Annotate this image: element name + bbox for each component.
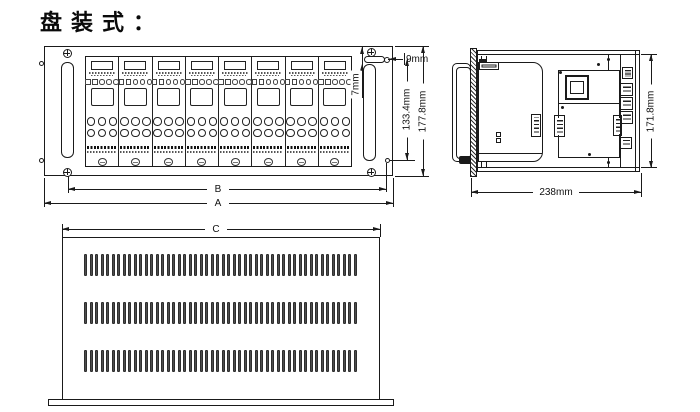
vent-slot [233,302,236,324]
vent-slot [249,254,252,276]
vent-slot [194,350,197,372]
module-header-text [289,72,315,74]
terminal-block [620,83,633,96]
vent-slot [211,254,214,276]
vent-slot [348,350,351,372]
vent-slot [326,302,329,324]
vent-slot [200,254,203,276]
vent-slot [244,254,247,276]
vent-slot [150,254,153,276]
vent-slot [266,254,269,276]
vent-slot [321,350,324,372]
terminal-block [620,111,633,124]
module-led-row [218,79,252,85]
vent-slot [238,302,241,324]
dimension-label: 177.8mm [418,83,429,139]
vent-slot [172,302,175,324]
screw-dot [559,71,562,74]
extension-line [390,160,415,161]
screw-dot [588,153,591,156]
vent-slot [178,350,181,372]
page-title: 盘装式： [40,5,164,37]
vent-slot [277,254,280,276]
module-header-text [224,75,246,77]
vent-slot [128,350,131,372]
module-led-row [318,79,352,85]
front-modules [85,56,352,167]
module-footer-text [220,146,250,149]
module-lcd-display [157,88,180,106]
terminal-block [620,137,632,149]
vent-slot [310,350,313,372]
vent-slot [354,254,357,276]
card-connector [531,114,541,137]
vent-slot [156,254,159,276]
vent-slot [288,302,291,324]
module-footer-text [154,146,184,149]
vent-slot [244,350,247,372]
dimension-arrow [471,190,478,194]
vent-slot [299,302,302,324]
module-led-row [152,79,186,85]
vent-slot [343,350,346,372]
vent-slot [90,302,93,324]
module-button-row [87,117,118,126]
vent-slot [167,254,170,276]
module-lcd-display [257,88,280,106]
keyhole-slot [364,56,385,63]
vent-slot [266,302,269,324]
mounting-hole [39,158,44,163]
vent-slot [315,350,318,372]
assembly-divider-line [558,103,620,104]
vent-slot [178,254,181,276]
module-footer-text [120,146,150,149]
module-header-text [122,72,148,74]
vent-slot [266,350,269,372]
module-button-row [187,117,218,126]
module-lcd-display [91,88,114,106]
module-footer-text [220,151,250,153]
vent-slot [106,302,109,324]
dimension-label: 7mm [351,71,362,99]
extension-line [393,178,394,207]
vent-slot [95,302,98,324]
dimension-arrow [649,54,653,61]
dimension-arrow [634,190,641,194]
module-footer-text [287,146,317,149]
vent-slot [178,302,181,324]
controller-module [286,57,319,166]
display-window-inner [570,81,584,94]
vent-slot [249,350,252,372]
vent-slot [354,302,357,324]
vent-slot [128,302,131,324]
vent-slot [343,254,346,276]
screw-dot [607,161,610,164]
module-led-row [119,79,153,85]
terminal-block [620,97,633,110]
vent-slot [222,302,225,324]
dimension-label: A [207,198,229,209]
handle-inner [456,67,471,159]
module-led-row [185,79,219,85]
vent-slot [139,302,142,324]
module-screw [231,158,240,166]
vent-slot [156,350,159,372]
vent-slot [282,302,285,324]
module-button-row [220,129,251,138]
vent-slot [343,302,346,324]
module-footer-text [287,151,317,153]
rear-panel-line [635,50,636,172]
vent-slot [337,302,340,324]
module-footer-text [320,146,350,149]
module-lcd-display [190,88,213,106]
vent-slot [332,302,335,324]
vent-slot [189,302,192,324]
dimension-arrow [389,57,396,61]
vent-slot [112,350,115,372]
case-inner-line [477,54,640,55]
vent-slot [150,350,153,372]
vent-slot [145,302,148,324]
vent-slot [271,254,274,276]
vent-slot [134,254,137,276]
vent-slot [117,302,120,324]
vent-slot [332,254,335,276]
vent-slot [354,350,357,372]
card-component [496,132,501,137]
vent-slot [106,350,109,372]
screw-dot [561,106,564,109]
vent-slot [288,254,291,276]
dimension-label: B [207,184,229,195]
vent-slot [282,254,285,276]
card-outline [478,62,543,162]
vent-slot [227,302,230,324]
dimension-arrow [360,47,364,54]
vent-slot [293,302,296,324]
module-header-text [156,72,182,74]
vent-slot [249,302,252,324]
vent-slot [112,254,115,276]
vent-slot [244,302,247,324]
vent-slot [348,254,351,276]
controller-module [86,57,119,166]
module-screw [164,158,173,166]
vent-slot [134,350,137,372]
vent-slot [315,254,318,276]
vent-slot [271,350,274,372]
module-button-row [220,117,251,126]
controller-module [219,57,252,166]
module-footer-text [87,146,117,149]
module-screw [330,158,339,166]
module-header-text [191,75,213,77]
card-component [496,138,501,143]
vent-slot [172,254,175,276]
terminal-block [622,67,633,79]
controller-module [119,57,152,166]
module-button-row [286,117,317,126]
dimension-label: 238mm [533,187,579,198]
vent-slot [321,302,324,324]
dimension-arrow [44,201,51,205]
vent-slot [321,254,324,276]
dimension-arrow [649,161,653,168]
vent-slot [304,302,307,324]
vent-slot [310,254,313,276]
module-label-window [191,61,213,70]
vent-row [84,254,357,276]
dimension-arrow [405,59,409,66]
vent-slot [189,254,192,276]
module-label-window [124,61,146,70]
module-footer-text [253,151,283,153]
vent-slot [255,302,258,324]
vent-slot [282,350,285,372]
left-mounting-slot [61,62,74,158]
module-header-text [255,72,281,74]
dimension-arrow [379,187,386,191]
vent-slot [260,302,263,324]
vent-slot [238,254,241,276]
vent-slot [293,350,296,372]
vent-slot [238,350,241,372]
dimension-label: 133.4mm [402,81,413,137]
vent-slot [227,350,230,372]
dimension-arrow [62,227,69,231]
vent-area [84,254,357,372]
vent-slot [200,350,203,372]
vent-slot [101,302,104,324]
vent-slot [205,254,208,276]
vent-slot [161,350,164,372]
vent-slot [299,350,302,372]
vent-slot [150,302,153,324]
vent-slot [216,350,219,372]
module-screw [98,158,107,166]
module-header-text [222,72,248,74]
vent-row [84,302,357,324]
module-label-window [324,61,346,70]
controller-module [153,57,186,166]
module-header-text [158,75,180,77]
vent-slot [128,254,131,276]
vent-slot [326,254,329,276]
module-footer-text [154,151,184,153]
module-lcd-display [224,88,247,106]
controller-module [252,57,285,166]
vent-slot [145,350,148,372]
vent-slot [260,254,263,276]
vent-slot [216,302,219,324]
module-footer-text [87,151,117,153]
extension-line [471,178,472,197]
module-label-window [257,61,279,70]
controller-module [319,57,351,166]
vent-slot [161,302,164,324]
vent-slot [123,302,126,324]
module-label-window [91,61,113,70]
vent-slot [123,254,126,276]
vent-slot [84,350,87,372]
front-panel-edge [470,48,477,177]
module-lcd-display [124,88,147,106]
module-footer-text [120,151,150,153]
vent-slot [288,350,291,372]
vent-slot [84,254,87,276]
extension-line [380,224,381,237]
vent-slot [277,350,280,372]
vent-slot [304,254,307,276]
dimension-arrow [421,169,425,176]
right-mounting-slot [363,64,376,161]
dimension-arrow [386,201,393,205]
vent-slot [293,254,296,276]
module-footer-text [253,146,283,149]
vent-slot [337,254,340,276]
vent-slot [156,302,159,324]
vent-slot [90,254,93,276]
vent-slot [348,302,351,324]
module-header-text [89,72,115,74]
vent-slot [101,254,104,276]
vent-slot [134,302,137,324]
vent-slot [304,350,307,372]
card-shelf-line [478,153,542,154]
module-footer-text [320,151,350,153]
screw-icon [63,168,72,177]
screw-icon [63,49,72,58]
module-lcd-display [323,88,346,106]
vent-slot [161,254,164,276]
module-label-window [224,61,246,70]
vent-slot [117,254,120,276]
module-screw [197,158,206,166]
vent-slot [315,302,318,324]
vent-slot [233,254,236,276]
vent-slot [255,254,258,276]
vent-slot [271,302,274,324]
technical-drawing-canvas: 盘装式： 7mm 9mm 133.4mm [0,0,700,412]
vent-row [84,350,357,372]
module-header-text [324,75,346,77]
vent-slot [167,350,170,372]
vent-slot [260,350,263,372]
vent-slot [106,254,109,276]
vent-slot [337,350,340,372]
module-screw [264,158,273,166]
vent-slot [183,350,186,372]
module-led-row [252,79,286,85]
module-led-row [85,79,119,85]
vent-slot [194,302,197,324]
module-header-text [124,75,146,77]
vent-slot [101,350,104,372]
mounting-hole [39,61,44,66]
screw-dot [597,63,600,66]
vent-slot [84,302,87,324]
vent-slot [200,302,203,324]
dimension-arrow [373,227,380,231]
vent-slot [222,254,225,276]
vent-slot [332,350,335,372]
vent-slot [299,254,302,276]
vent-slot [211,350,214,372]
vent-slot [139,254,142,276]
module-button-row [87,129,118,138]
extension-line [386,163,387,192]
module-button-row [320,117,351,126]
vent-slot [183,254,186,276]
extension-line [395,176,429,177]
module-header-text [291,75,313,77]
module-button-row [286,129,317,138]
module-button-row [120,117,151,126]
base-flange [48,399,394,406]
vent-slot [227,254,230,276]
dimension-arrow [421,46,425,53]
vent-slot [189,350,192,372]
module-footer-text [187,146,217,149]
module-footer-text [187,151,217,153]
module-header-text [322,72,348,74]
screw-icon [367,168,376,177]
vent-slot [139,350,142,372]
vent-slot [145,254,148,276]
screw-dot [607,58,610,61]
mounting-hole [385,158,390,163]
vent-slot [326,350,329,372]
dimension-arrow [405,153,409,160]
dimension-label: C [205,224,227,235]
extension-line [641,173,642,197]
module-header-text [189,72,215,74]
vent-slot [183,302,186,324]
module-label-window [291,61,313,70]
vent-slot [255,350,258,372]
module-led-row [285,79,319,85]
vent-slot [211,302,214,324]
vent-slot [216,254,219,276]
module-button-row [253,129,284,138]
module-label-window [158,61,180,70]
dimension-label: 171.8mm [646,84,657,138]
module-button-row [120,129,151,138]
card-top-tab [479,62,499,70]
module-button-row [253,117,284,126]
vent-slot [95,254,98,276]
module-lcd-display [290,88,313,106]
module-button-row [153,117,184,126]
bus-connector [554,115,565,137]
module-button-row [320,129,351,138]
case-inner-line [477,167,640,168]
vent-slot [90,350,93,372]
dimension-arrow [68,187,75,191]
module-header-text [91,75,113,77]
vent-slot [172,350,175,372]
vent-slot [194,254,197,276]
module-screw [297,158,306,166]
module-button-row [187,129,218,138]
vent-slot [277,302,280,324]
vent-slot [205,350,208,372]
vent-slot [167,302,170,324]
vent-slot [95,350,98,372]
